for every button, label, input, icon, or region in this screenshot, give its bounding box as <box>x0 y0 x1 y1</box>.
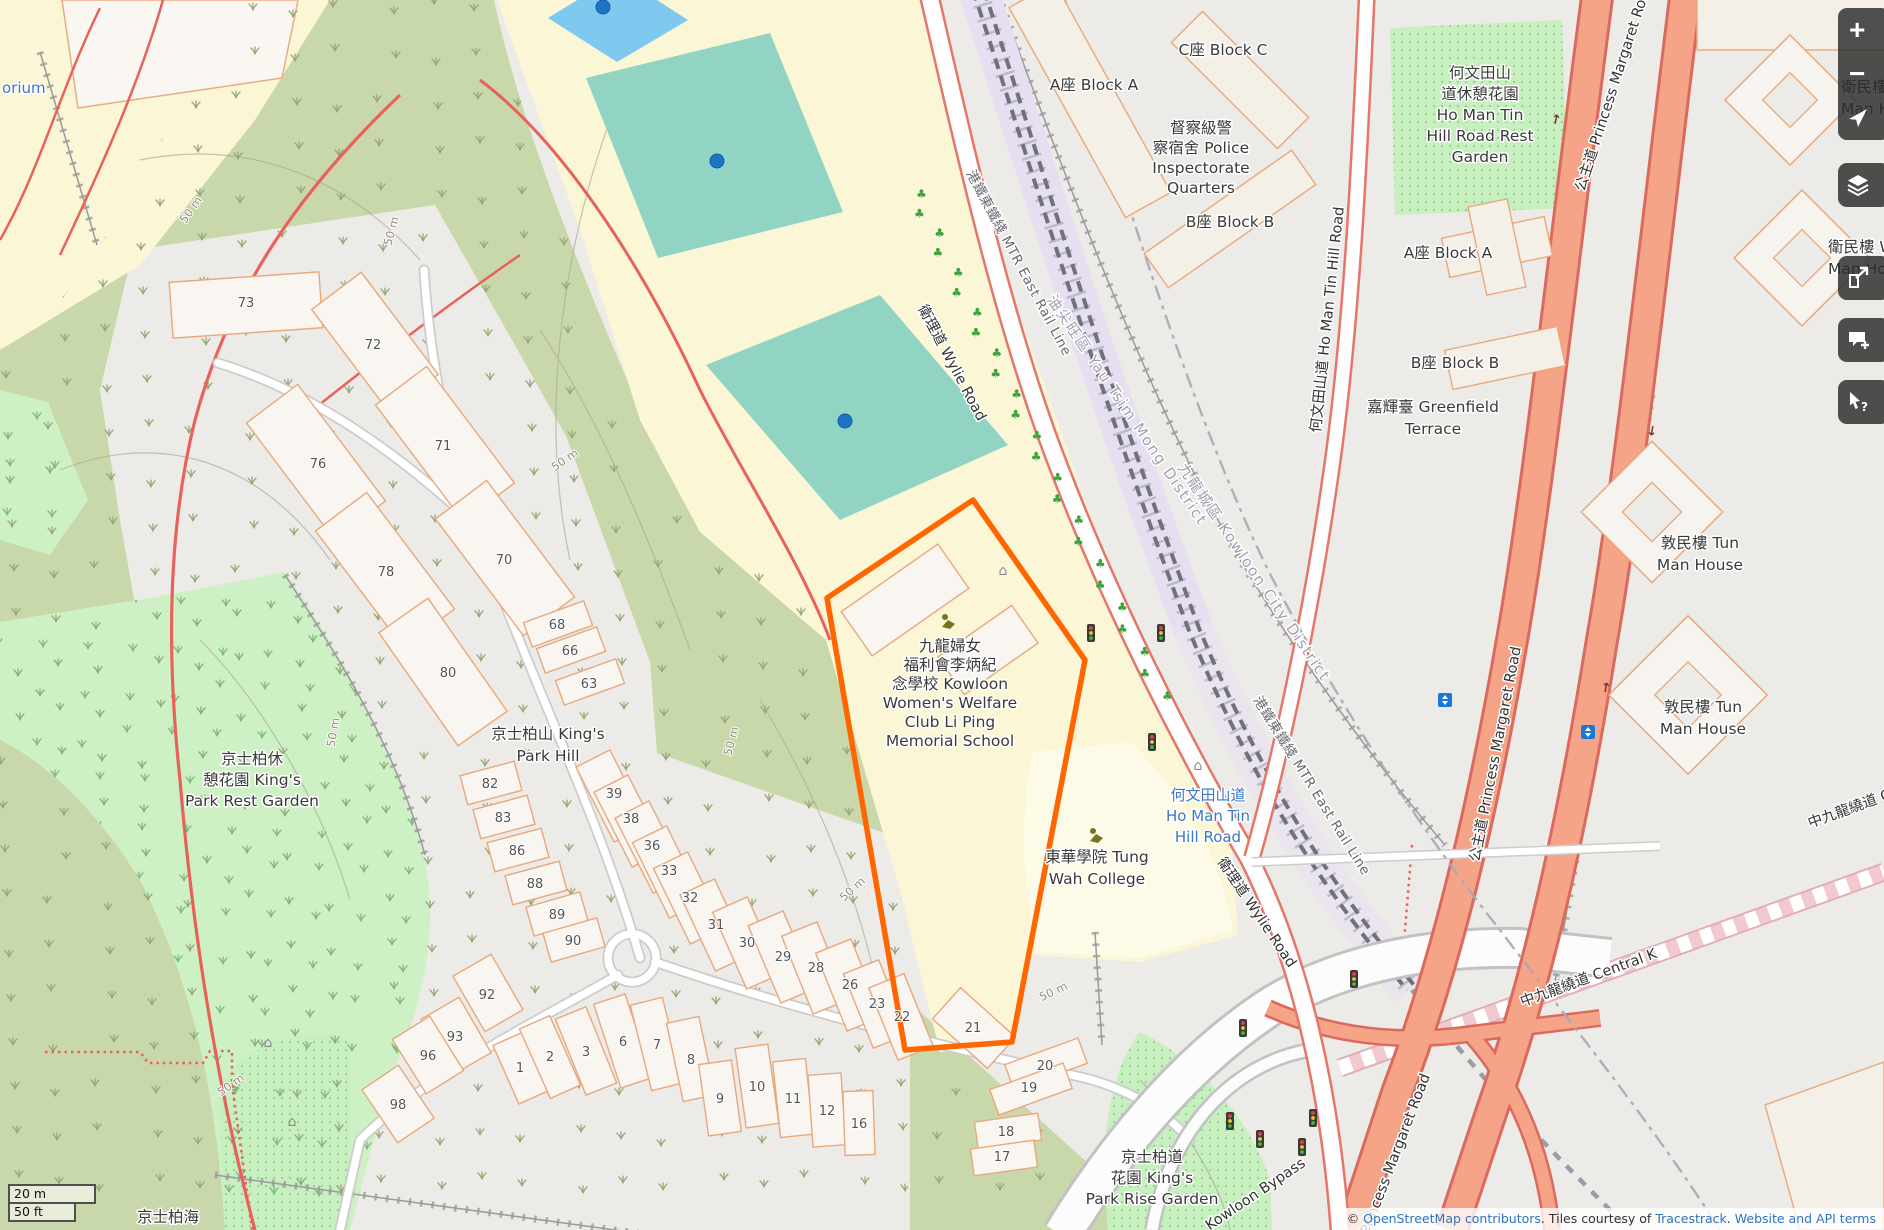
layers-icon <box>1846 173 1870 197</box>
house-number: 18 <box>998 1125 1015 1140</box>
label-auditorium: orium <box>2 79 46 97</box>
street-tree-icon: ♣ <box>1073 535 1084 549</box>
hut-icon: ⌂ <box>264 1035 273 1051</box>
house-number: 17 <box>994 1150 1011 1165</box>
house-number: 63 <box>581 677 598 692</box>
street-tree-icon: ♣ <box>951 285 962 299</box>
hut-icon: ⌂ <box>288 1114 297 1130</box>
traffic-light-icon <box>1157 624 1165 642</box>
attribution-bar: © OpenStreetMap contributors. Tiles cour… <box>1341 1208 1884 1230</box>
house-number: 11 <box>785 1092 802 1107</box>
house-number: 72 <box>365 338 382 353</box>
house-number: 92 <box>479 988 496 1003</box>
layers-button[interactable] <box>1838 163 1884 207</box>
house-number: 7 <box>653 1038 661 1053</box>
house-number: 10 <box>749 1080 766 1095</box>
house-number: 82 <box>482 777 499 792</box>
label-block-a-right: A座 Block A <box>1404 244 1493 262</box>
street-tree-icon: ♣ <box>1052 492 1063 506</box>
house-number: 16 <box>851 1117 868 1132</box>
street-tree-icon: ♣ <box>953 265 964 279</box>
street-tree-icon: ♣ <box>914 206 925 220</box>
zoom-controls: + − <box>1838 8 1884 140</box>
osm-contributors-link[interactable]: OpenStreetMap contributors <box>1363 1211 1541 1226</box>
tracestrack-link[interactable]: Tracestrack <box>1655 1211 1726 1226</box>
street-tree-icon: ♣ <box>1010 408 1021 422</box>
house-number: 36 <box>644 839 661 854</box>
traffic-light-icon <box>1256 1130 1264 1148</box>
street-tree-icon: ♣ <box>1052 471 1063 485</box>
zoom-out-icon: − <box>1846 59 1884 89</box>
street-tree-icon: ♣ <box>1095 556 1106 570</box>
street-tree-icon: ♣ <box>991 346 1002 360</box>
house-number: 66 <box>562 644 579 659</box>
zoom-in-icon: + <box>1846 15 1884 45</box>
traffic-light-icon <box>1298 1138 1306 1156</box>
locate-icon <box>1846 106 1870 130</box>
house-number: 88 <box>527 877 544 892</box>
query-features-button[interactable]: ? <box>1838 380 1884 424</box>
attribution-prefix: © <box>1347 1211 1363 1226</box>
house-number: 33 <box>661 864 678 879</box>
label-block-c-police: C座 Block C <box>1179 41 1268 59</box>
street-tree-icon: ♣ <box>1073 513 1084 527</box>
house-number: 73 <box>238 296 255 311</box>
label-block-a-police: A座 Block A <box>1050 76 1139 94</box>
traffic-light-icon <box>1350 970 1358 988</box>
house-number: 22 <box>894 1010 911 1025</box>
query-features-icon: ? <box>1846 390 1870 414</box>
house-number: 21 <box>965 1021 982 1036</box>
svg-text:?: ? <box>1861 400 1868 414</box>
street-tree-icon: ♣ <box>1162 689 1173 703</box>
traffic-light-icon <box>1309 1109 1317 1127</box>
street-tree-icon: ♣ <box>1095 578 1106 592</box>
house-number: 86 <box>509 844 526 859</box>
share-button[interactable] <box>1838 256 1884 300</box>
label-kings-park-sea: 京士柏海 <box>137 1208 199 1226</box>
house-number: 9 <box>716 1092 724 1107</box>
house-number: 32 <box>682 891 699 906</box>
house-number: 12 <box>819 1104 836 1119</box>
house-number: 93 <box>447 1030 464 1045</box>
house-number: 39 <box>606 787 623 802</box>
house-number: 2 <box>546 1050 554 1065</box>
house-number: 28 <box>808 961 825 976</box>
map-svg: ♣♣♣♣♣♣♣♣♣♣♣♣♣♣♣♣♣♣♣♣♣♣♣♣♣⌂⌂⌂⌂→→→ 7372767… <box>0 0 1884 1230</box>
hut-icon: ⌂ <box>999 563 1008 579</box>
house-number: 78 <box>378 565 395 580</box>
street-tree-icon: ♣ <box>1032 429 1043 443</box>
street-tree-icon: ♣ <box>1011 387 1022 401</box>
attribution-separator: . <box>1727 1211 1735 1226</box>
house-number: 90 <box>565 934 582 949</box>
traffic-light-icon <box>1226 1112 1234 1130</box>
scale-control: 20 m 50 ft <box>8 1184 96 1222</box>
street-tree-icon: ♣ <box>1031 449 1042 463</box>
elevator-icon <box>1581 725 1595 739</box>
locate-button[interactable] <box>1838 96 1884 140</box>
house-number: 89 <box>549 908 566 923</box>
house-number: 70 <box>496 553 513 568</box>
elevator-icon <box>1438 693 1452 707</box>
house-number: 68 <box>549 618 566 633</box>
street-tree-icon: ♣ <box>934 226 945 240</box>
scale-imperial: 50 ft <box>8 1204 76 1222</box>
house-number: 76 <box>310 457 327 472</box>
house-number: 71 <box>435 439 452 454</box>
house-number: 8 <box>687 1053 695 1068</box>
house-number: 31 <box>708 918 725 933</box>
house-number: 20 <box>1037 1059 1054 1074</box>
label-block-b-police: B座 Block B <box>1186 213 1275 231</box>
add-note-icon <box>1846 328 1870 352</box>
house-number: 26 <box>842 978 859 993</box>
street-tree-icon: ♣ <box>972 305 983 319</box>
house-number: 30 <box>739 936 756 951</box>
street-tree-icon: ♣ <box>1117 600 1128 614</box>
street-tree-icon: ♣ <box>916 187 927 201</box>
hut-icon: ⌂ <box>1194 758 1203 774</box>
house-number: 1 <box>516 1061 524 1076</box>
house-number: 3 <box>582 1045 590 1060</box>
house-number: 19 <box>1021 1081 1038 1096</box>
house-number: 6 <box>619 1035 627 1050</box>
street-tree-icon: ♣ <box>1139 644 1150 658</box>
house-number: 23 <box>869 997 886 1012</box>
street-tree-icon: ♣ <box>971 326 982 340</box>
street-tree-icon: ♣ <box>932 246 943 260</box>
label-ho-man-tin-hill-road-link: 何文田山道Ho Man TinHill Road <box>1166 786 1250 846</box>
street-tree-icon: ♣ <box>1117 622 1128 636</box>
website-api-terms-link[interactable]: Website and API terms <box>1735 1211 1876 1226</box>
map-canvas[interactable]: ♣♣♣♣♣♣♣♣♣♣♣♣♣♣♣♣♣♣♣♣♣♣♣♣♣⌂⌂⌂⌂→→→ 7372767… <box>0 0 1884 1230</box>
house-number: 80 <box>440 666 457 681</box>
street-tree-icon: ♣ <box>990 366 1001 380</box>
street-tree-icon: ♣ <box>1140 667 1151 681</box>
scale-metric: 20 m <box>8 1184 96 1204</box>
attribution-middle: . Tiles courtesy of <box>1541 1211 1655 1226</box>
house-number: 29 <box>775 950 792 965</box>
traffic-light-icon <box>1239 1019 1247 1037</box>
house-number: 83 <box>495 811 512 826</box>
share-icon <box>1846 266 1870 290</box>
house-number: 38 <box>623 812 640 827</box>
add-note-button[interactable] <box>1838 318 1884 362</box>
traffic-light-icon <box>1087 624 1095 642</box>
zoom-in-button[interactable]: + <box>1838 8 1884 52</box>
label-block-b-right: B座 Block B <box>1411 354 1500 372</box>
zoom-out-button[interactable]: − <box>1838 52 1884 96</box>
traffic-light-icon <box>1148 733 1156 751</box>
house-number: 98 <box>390 1098 407 1113</box>
house-number: 96 <box>420 1049 437 1064</box>
